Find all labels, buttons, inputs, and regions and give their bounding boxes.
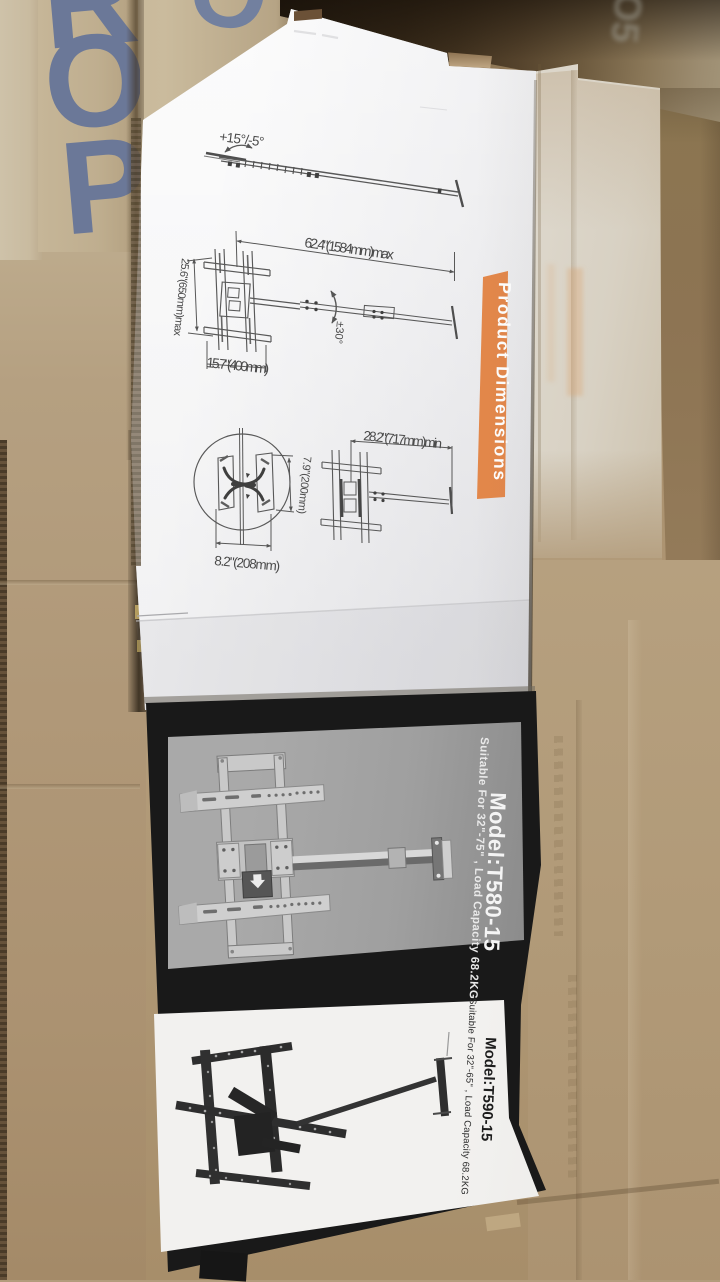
svg-text:Model:T590-15: Model:T590-15 — [477, 1037, 499, 1142]
svg-text:Suitable For 32"-65" , Load C: Suitable For 32"-65" , Load Capacity 68.… — [458, 998, 478, 1195]
